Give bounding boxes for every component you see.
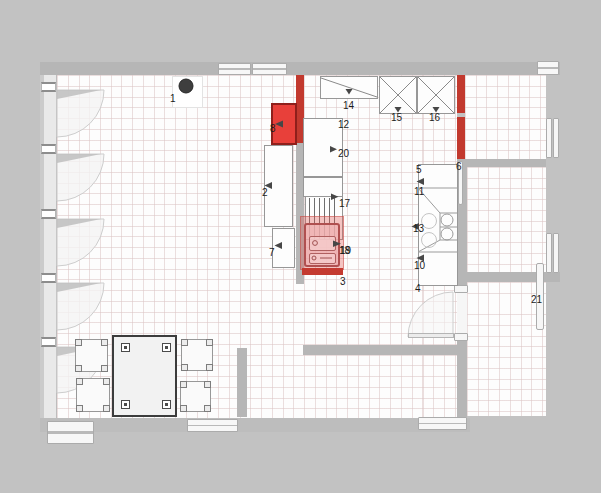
item-label-5: 5 bbox=[416, 165, 422, 175]
door-right-jamb-top bbox=[454, 285, 468, 293]
item-label-10: 10 bbox=[414, 261, 425, 271]
wall-red-right-upper bbox=[457, 75, 465, 113]
chair-post bbox=[206, 339, 213, 346]
window-bottom-1[interactable] bbox=[187, 419, 238, 432]
wall-stub-vertical bbox=[237, 348, 247, 417]
item-label-17: 17 bbox=[339, 199, 350, 209]
item-label-13: 13 bbox=[413, 224, 424, 234]
wall-cabinet-15[interactable] bbox=[379, 76, 417, 114]
stove-drawer bbox=[309, 253, 336, 264]
window-left-4[interactable] bbox=[41, 273, 56, 283]
item-label-8: 8 bbox=[270, 124, 276, 134]
window-top-2[interactable] bbox=[252, 63, 287, 75]
window-left-2[interactable] bbox=[41, 144, 56, 154]
chair-post bbox=[206, 364, 213, 371]
chair-post bbox=[181, 364, 188, 371]
chair-post bbox=[75, 339, 82, 346]
chair-post bbox=[75, 365, 82, 372]
stove-oven-door bbox=[309, 236, 336, 251]
wall-right-horizontal bbox=[457, 272, 560, 282]
window-top-right[interactable] bbox=[537, 61, 559, 75]
item-label-1: 1 bbox=[170, 94, 176, 104]
wall-red-right-lower bbox=[457, 117, 465, 159]
chair-post bbox=[101, 365, 108, 372]
chair-top-left[interactable] bbox=[75, 339, 108, 372]
floor-room-mid-right bbox=[467, 167, 546, 272]
item-label-2: 2 bbox=[262, 188, 268, 198]
wall-cabinet-16[interactable] bbox=[417, 76, 455, 114]
lamp-pad bbox=[172, 76, 203, 108]
window-right-1b[interactable] bbox=[553, 118, 559, 158]
floor-plan-canvas: 1 2 3 4 5 6 7 8 10 11 12 13 14 15 16 17 … bbox=[0, 0, 601, 493]
item-label-14: 14 bbox=[343, 101, 354, 111]
chair-post bbox=[181, 339, 188, 346]
item-label-3: 3 bbox=[340, 277, 346, 287]
table-leg bbox=[121, 343, 130, 352]
stove-plinth-3[interactable] bbox=[302, 268, 343, 275]
wall-shelf-14[interactable] bbox=[320, 76, 378, 99]
item-label-21: 21 bbox=[531, 295, 542, 305]
table-leg bbox=[121, 400, 130, 409]
item-label-6: 6 bbox=[456, 162, 462, 172]
window-bottom-2[interactable] bbox=[418, 417, 467, 430]
chair-post bbox=[103, 405, 110, 412]
window-right-2b[interactable] bbox=[553, 233, 559, 273]
chair-top-right[interactable] bbox=[181, 339, 213, 371]
door-right-leaf[interactable] bbox=[408, 333, 454, 338]
item-label-19: 19 bbox=[340, 246, 351, 256]
wall-top bbox=[40, 62, 560, 75]
item-label-7: 7 bbox=[269, 248, 275, 258]
window-right-2a[interactable] bbox=[546, 233, 552, 273]
item-label-15: 15 bbox=[391, 113, 402, 123]
chair-post bbox=[180, 381, 187, 388]
chair-post bbox=[204, 381, 211, 388]
wall-kitchen-bottom bbox=[303, 345, 462, 355]
chair-post bbox=[204, 405, 211, 412]
chair-post bbox=[103, 378, 110, 385]
window-top-1[interactable] bbox=[218, 63, 251, 75]
dining-table[interactable] bbox=[112, 335, 177, 417]
item-label-11: 11 bbox=[414, 187, 424, 197]
chair-post bbox=[76, 378, 83, 385]
worktop-2[interactable] bbox=[264, 145, 293, 227]
radiator-bottom-left[interactable] bbox=[47, 421, 94, 444]
cabinet-7[interactable] bbox=[272, 228, 295, 268]
chair-post bbox=[101, 339, 108, 346]
chair-post bbox=[76, 405, 83, 412]
cabinet-12-20[interactable] bbox=[303, 118, 343, 177]
floor-room-top-right bbox=[465, 75, 546, 160]
item-label-12: 12 bbox=[338, 120, 349, 130]
wall-left bbox=[40, 75, 57, 420]
table-leg bbox=[162, 400, 171, 409]
chair-post bbox=[180, 405, 187, 412]
window-left-5[interactable] bbox=[41, 337, 56, 347]
chair-bottom-left[interactable] bbox=[76, 378, 110, 412]
window-left-3[interactable] bbox=[41, 209, 56, 219]
item-label-16: 16 bbox=[429, 113, 440, 123]
wall-room-divider-horizontal bbox=[465, 159, 546, 167]
table-leg bbox=[162, 343, 171, 352]
window-right-1a[interactable] bbox=[546, 118, 552, 158]
item-label-20: 20 bbox=[338, 149, 349, 159]
cabinet-20-lower[interactable] bbox=[303, 177, 343, 197]
chair-bottom-right[interactable] bbox=[180, 381, 211, 412]
door-right-jamb-bottom bbox=[454, 333, 468, 341]
item-label-4: 4 bbox=[415, 284, 421, 294]
wall-bottom bbox=[40, 418, 470, 432]
window-left-1[interactable] bbox=[41, 82, 56, 92]
door-right-opening bbox=[457, 288, 467, 334]
